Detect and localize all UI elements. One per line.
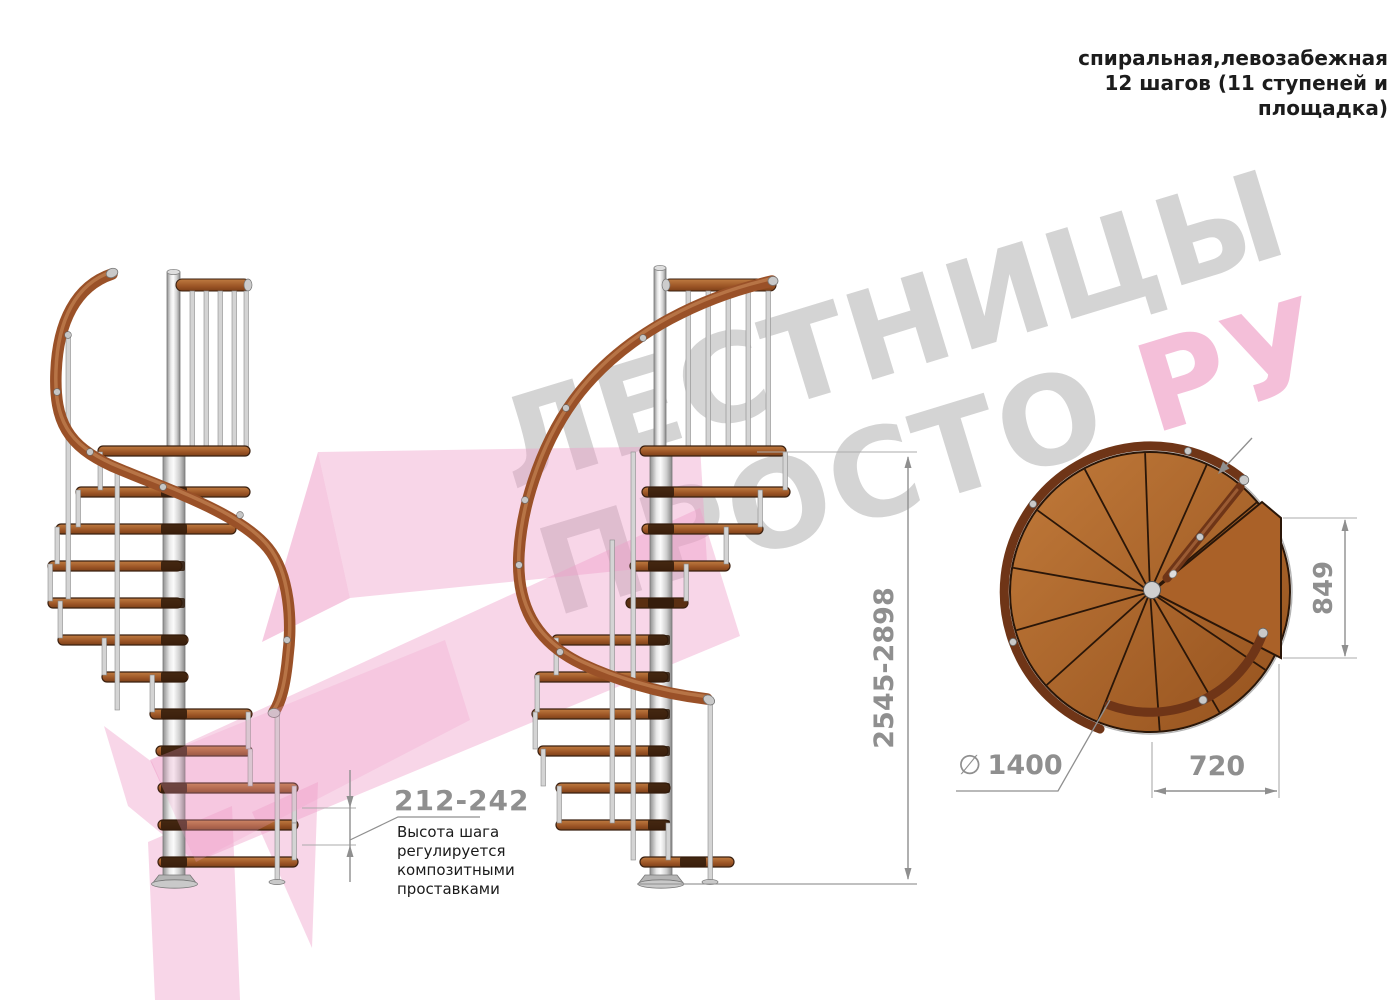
drawing-canvas: 2545-2898 849 [0,0,1400,1000]
drawing-title: спиральная,левозабежная 12 шагов (11 сту… [1028,46,1388,121]
center-pole-upper [167,272,180,452]
landing-offset-label: 720 [1178,751,1256,782]
staircase-plan-view [1004,446,1292,734]
landing-platform [98,446,250,456]
landing-guard-rail [176,279,250,291]
landing-platform [640,446,786,456]
total-height-label: 2545-2898 [869,587,900,749]
landing-width-label: 849 [1309,561,1339,615]
center-pole [650,448,672,880]
center-pole-upper [654,268,666,450]
guard-balusters [686,291,771,447]
plan-center-pole [1144,582,1161,599]
step-height-label: 212-242 [394,784,530,817]
step-height-note: Высота шага регулируется композитными пр… [397,823,557,899]
guard-balusters [190,291,249,447]
diameter-value: 1400 [988,750,1063,781]
technical-drawing-page: { "header": { "title": "спиральная,левоз… [0,0,1400,1000]
diameter-symbol: ∅ [958,750,982,781]
diameter-label: ∅1400 [958,750,1063,781]
base-plate [152,880,198,888]
